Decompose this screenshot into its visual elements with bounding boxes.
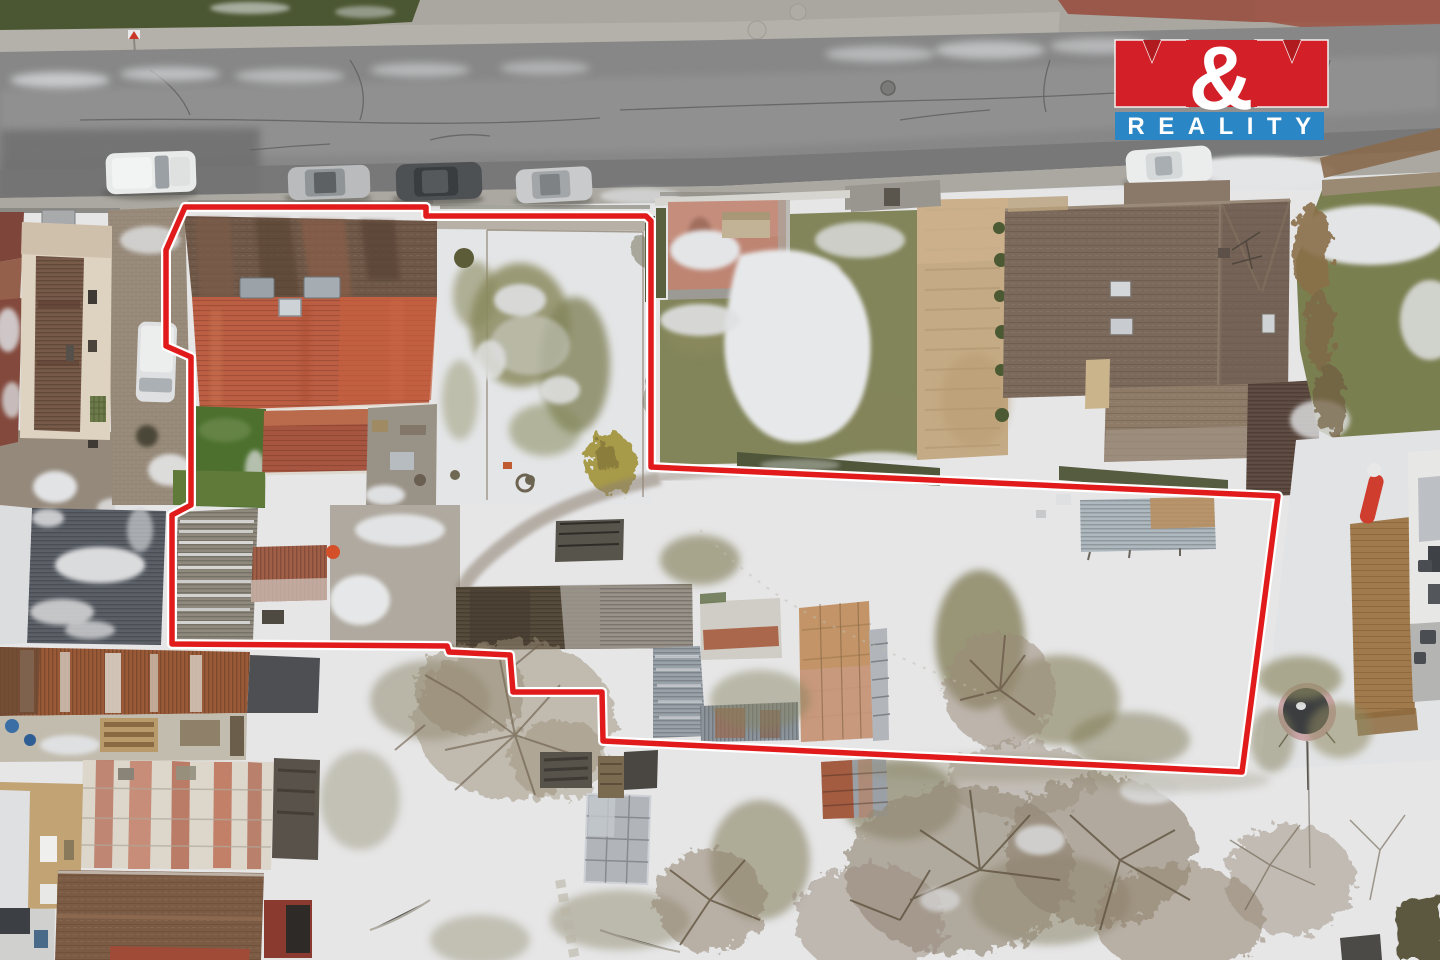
- svg-text:REALITY: REALITY: [1127, 113, 1324, 140]
